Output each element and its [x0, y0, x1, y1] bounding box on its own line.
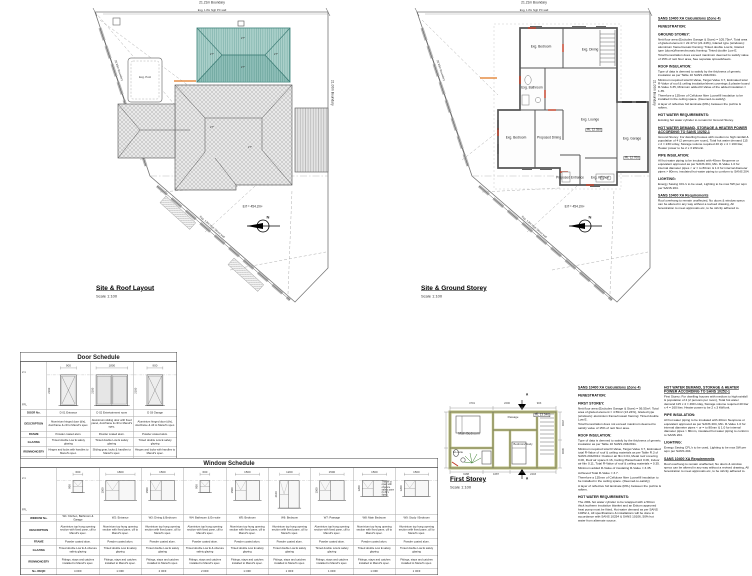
calc-paragraph: Energy Saving CFL's to be used, Lighting… — [658, 183, 750, 190]
window_schedule-iron-0: Fittings, stays and catches installed to… — [57, 555, 99, 568]
calc-heading: ROOF INSULATION: — [658, 65, 750, 69]
level-mark: 2.1 — [22, 477, 26, 480]
calc-paragraph: Total Fenestration does not exceed maxim… — [578, 423, 662, 430]
door_schedule-drawing-0: 9002100 — [47, 362, 90, 410]
calc-heading: HOT WATER REQUIREMENTS: — [578, 496, 662, 500]
window_schedule-req-5: 1 OFF — [268, 568, 310, 575]
door_schedule-glazing-2: Tinted double Low E safety glazing — [133, 438, 176, 447]
window_schedule-glazing-3: Tinted double Low E & obscure safety gla… — [183, 545, 225, 555]
calc-paragraph: All hot water piping to be insulated wit… — [658, 159, 750, 174]
calc-heading: PIPE INSULATION: — [664, 414, 750, 418]
window_schedule-desc-5: Aluminium top hung opening section with … — [268, 522, 310, 539]
calc-heading: SANS 10400 XA Requirements — [664, 457, 750, 461]
roof-pitch-label: 27° — [248, 146, 252, 149]
calc-paragraph: Roof overhang to remain unaffected, No d… — [664, 462, 750, 473]
window_schedule-glazing-6: Tinted double Low E safety glazing — [310, 545, 352, 555]
svg-text:2100: 2100 — [47, 387, 51, 394]
door_schedule-iron-2: Hinges and locks with handles to Manuf's… — [133, 447, 176, 457]
window_schedule-desc-6: Aluminium top hung opening section with … — [310, 522, 352, 539]
window_schedule-req-6: 1 OFF — [310, 568, 352, 575]
left-north-label: N — [267, 215, 270, 220]
svg-text:2100: 2100 — [134, 387, 138, 394]
window_schedule-drawing-4: 15001500 — [226, 468, 268, 515]
roof-pitch-label: 27° — [210, 126, 214, 129]
calc-heading: GROUND STOREY: — [658, 33, 750, 37]
window_schedule-req-8: 1 OFF — [395, 568, 437, 575]
room-label: Exg. Bedroom — [506, 136, 527, 140]
first-storey-title: First Storey — [450, 475, 486, 483]
level-mark: FFL — [22, 404, 27, 407]
room-label: Exg. Dining — [582, 48, 599, 52]
right-plan-scale: Scale 1:100 — [421, 294, 442, 299]
window_schedule-drawing-1: 18001500 — [99, 468, 141, 515]
svg-text:1500: 1500 — [329, 470, 336, 474]
calc-paragraph: Therefore a 135mm of Cellulose fibre Loo… — [658, 94, 750, 101]
window_schedule-desc-4: Aluminium top hung opening section with … — [226, 522, 268, 539]
section-marker-label: A — [526, 393, 528, 397]
room-label: Bedroom/Study — [514, 443, 533, 446]
right-plan-title: Site & Ground Storey — [421, 284, 487, 292]
calc-paragraph: All hot water piping to be insulated wit… — [664, 419, 750, 437]
window-note: This W to open with obscure safety pane … — [382, 481, 395, 497]
window_schedule-drawing-2: 15001500 — [141, 468, 183, 515]
window_schedule-glazing-7: Tinted double Low E safety glazing — [353, 545, 395, 555]
calc-heading: SANS 10400 XA Calculations (Zone 4) — [578, 386, 662, 390]
window_schedule-drawing-5: 12002100 — [268, 468, 310, 515]
left-street-wall-label: Exg. 1.8m High Street wall — [199, 215, 225, 239]
room-label: Exg. Bedroom — [531, 45, 552, 49]
door_schedule-iron-0: Hinges and locks with handles to Manuf's… — [47, 447, 90, 457]
section-marker-label: A — [526, 477, 528, 481]
calc-paragraph: Achieved Total R-Value = 3.7. — [578, 471, 662, 475]
rl-badge: RL 12.700 — [624, 156, 641, 160]
left-plan-scale: Scale 1:100 — [96, 294, 117, 299]
window_schedule-title: Window Schedule — [21, 459, 438, 468]
room-label: Exg. Bathroom — [521, 86, 543, 90]
window_schedule-desc-3: Aluminium top hung opening section with … — [183, 522, 225, 539]
door_schedule-drawing-2: 9002100 — [133, 362, 176, 410]
room-label: Proposed Entrance — [556, 176, 584, 180]
window_schedule-desc-0: Aluminium top hung opening section with … — [57, 522, 99, 539]
calc-paragraph: The 200L hot water cylinder to be wrappe… — [578, 501, 662, 523]
dim-label: 3600 — [561, 448, 564, 454]
window_schedule-no-4: W5: Bedroom — [226, 515, 268, 522]
room-label: Exg. Lounge — [581, 118, 599, 122]
calc-heading: HOT WATER REQUIREMENTS: — [658, 114, 750, 118]
svg-text:1500: 1500 — [145, 487, 149, 493]
svg-text:1500: 1500 — [371, 470, 378, 474]
door_schedule-row-label: IRONMONGERY — [21, 447, 47, 457]
svg-text:1200: 1200 — [399, 485, 403, 491]
calc-paragraph: Minimum added R-Value of insulating R-Va… — [578, 467, 662, 471]
svg-text:1500: 1500 — [244, 470, 251, 474]
window_schedule-row-label: DESCRIPTION — [21, 522, 57, 539]
room-label: Passage — [508, 416, 519, 419]
window_schedule-no-7: W8: Main Bedroom — [353, 515, 395, 522]
left-erf-label: Erf = 454.2m² — [243, 205, 263, 209]
calc-column-first-right: HOT WATER DEMAND, STORAGE & HEATER POWER… — [664, 386, 750, 474]
calc-paragraph: Minimum required total R-Value, Target V… — [658, 78, 750, 93]
window_schedule-glazing-8: Tinted double Low E safety glazing — [395, 545, 437, 555]
window_schedule-iron-2: Fittings, stays and catches installed to… — [141, 555, 183, 568]
window_schedule-iron-3: Fittings, stays and catches installed to… — [183, 555, 225, 568]
room-label: Proposed Dining — [537, 136, 561, 140]
door_schedule-desc-1: Aluminium sliding door with fixed panel,… — [90, 416, 133, 431]
svg-text:2100: 2100 — [274, 491, 278, 497]
left-boundary-left-label: 20.95m Boundary — [114, 60, 124, 82]
window_schedule-row-label: WINDOW No. — [21, 515, 57, 522]
svg-text:1500: 1500 — [230, 487, 234, 493]
svg-text:1500: 1500 — [159, 470, 166, 474]
door_schedule-row-label: GLAZING — [21, 438, 47, 447]
drawing-sheet: 21.21m Boundary Exg. 1.8m high PC wall 2… — [0, 0, 752, 576]
window_schedule-iron-6: Fittings, stays and catches installed to… — [310, 555, 352, 568]
window_schedule-no-6: W7: Passage — [310, 515, 352, 522]
first-storey-scale: Scale 1:100 — [450, 485, 471, 490]
calc-heading: SANS 10400 XA Requirements — [658, 194, 750, 198]
calc-heading: FENESTRATION: — [658, 25, 750, 29]
window_schedule-req-4: 1 OFF — [226, 568, 268, 575]
window_schedule-no-5: W6: Bedroom — [268, 515, 310, 522]
room-label: En-suite — [453, 451, 463, 454]
calc-paragraph: Nett floor area (Excludes Garage & Store… — [658, 38, 750, 53]
calc-heading: FENESTRATION: — [578, 394, 662, 398]
calc-heading: FIRST STOREY: — [578, 402, 662, 406]
right-pc-wall-label: Exg. 1.8m high PC wall — [520, 9, 548, 12]
window_schedule-no-1: W2: Entrance — [99, 515, 141, 522]
left-pc-wall-label: Exg. 1.8m high PC wall — [198, 9, 226, 12]
calc-paragraph: A layer of reflective foil laminate (RFL… — [658, 102, 750, 109]
micro-text-layer: 21.21m Boundary Exg. 1.8m high PC wall 2… — [0, 0, 752, 576]
roof-pitch-label: 27° — [274, 53, 278, 56]
window_schedule-iron-4: Fittings, stays and catches installed to… — [226, 555, 268, 568]
window_schedule-drawing-6: 15001500 — [310, 468, 352, 515]
calc-heading: SANS 10400 XA Calculations (Zone 4) — [658, 17, 750, 21]
calc-paragraph: Ground Storey: For dwelling houses with … — [658, 135, 750, 150]
calc-paragraph: First Storey: For dwelling houses with m… — [664, 395, 750, 410]
window_schedule-glazing-2: Tinted double Low E safety glazing — [141, 545, 183, 555]
right-boundary-top-label: 21.21m Boundary — [521, 1, 547, 5]
window_schedule-desc-8: Aluminium top hung opening section with … — [395, 522, 437, 539]
window_schedule-drawing-8: 15001200 — [395, 468, 437, 515]
window_schedule-no-8: W9: Study / Bedroom — [395, 515, 437, 522]
dim-label: 2200 — [561, 420, 564, 426]
svg-text:1500: 1500 — [314, 487, 318, 493]
svg-text:600: 600 — [202, 470, 207, 474]
door_schedule-iron-1: Sliding gear, locks & handles to Manuf's… — [90, 447, 133, 457]
door_schedule-levels: 2.1FFL — [21, 362, 47, 410]
calc-paragraph: Type of data is deemed to satisfy by the… — [658, 70, 750, 77]
svg-text:1500: 1500 — [100, 487, 104, 493]
window_schedule-glazing-1: Tinted double Low E safety glazing — [99, 545, 141, 555]
window_schedule-iron-5: Fittings, stays and catches installed to… — [268, 555, 310, 568]
svg-text:900: 900 — [195, 484, 199, 489]
room-label: Main Bedroom — [458, 432, 479, 436]
svg-text:600: 600 — [75, 470, 80, 474]
window_schedule-iron-1: Fittings, stays and catches installed to… — [99, 555, 141, 568]
calc-paragraph: A layer of reflective foil laminate (RFL… — [578, 484, 662, 491]
roof-pitch-label: 27° — [241, 66, 245, 69]
window_schedule-levels: 2.1FFL — [21, 468, 57, 515]
window_schedule-req-2: 2 OFF — [141, 568, 183, 575]
svg-text:1800: 1800 — [108, 363, 115, 367]
right-north-label: N — [589, 215, 592, 220]
svg-text:900: 900 — [153, 363, 158, 367]
right-boundary-right-label: 21.00m Boundary — [653, 80, 657, 106]
level-mark: 2.1 — [22, 371, 26, 374]
window_schedule-row-label: IRONMONGERY — [21, 555, 57, 568]
calc-paragraph: Therefore a 135mm of Cellulose fibre Loo… — [578, 476, 662, 483]
svg-text:1200: 1200 — [357, 485, 361, 491]
rl-badge: RL 13.346 — [534, 413, 551, 417]
calc-paragraph: Roof overhang to remain unaffected, No d… — [658, 199, 750, 210]
calc-column-ground: SANS 10400 XA Calculations (Zone 4)FENES… — [658, 17, 750, 211]
right-boundary-left-label: 20.95m Boundary — [436, 60, 446, 82]
calc-heading: LIGHTING: — [658, 178, 750, 182]
window_schedule-iron-8: Fittings, stays and catches installed to… — [395, 555, 437, 568]
svg-text:1200: 1200 — [286, 470, 293, 474]
calc-paragraph: Minimum required total R-Value, Target V… — [578, 447, 662, 465]
window_schedule-glazing-4: Tinted double Low E safety glazing — [226, 545, 268, 555]
window_schedule-desc-7: Aluminium top hung opening section with … — [353, 522, 395, 539]
window_schedule-desc-2: Aluminium top hung opening section with … — [141, 522, 183, 539]
right-erf-label: Erf = 454.2m² — [565, 205, 585, 209]
svg-text:900: 900 — [66, 363, 71, 367]
svg-text:2100: 2100 — [90, 387, 94, 394]
door_schedule-drawing-1: 18002100 — [90, 362, 133, 410]
pool-label: Exg. Pool — [139, 76, 151, 79]
roof-pitch-label: 27° — [241, 37, 245, 40]
door_schedule-desc-0: Aluminium hinged door (d/s), doorframe &… — [47, 416, 90, 431]
calc-heading: LIGHTING: — [664, 441, 750, 445]
window_schedule-drawing-7: 15001200This W to open with obscure safe… — [353, 468, 395, 515]
room-label: Exg. Garage — [623, 137, 641, 141]
level-mark: FFL — [22, 509, 27, 512]
window_schedule-row-label: GLAZING — [21, 545, 57, 555]
door-schedule: Door Schedule2.1FFL900210018002100900210… — [20, 352, 177, 463]
door_schedule-row-label: DESCRIPTION — [21, 416, 47, 431]
left-boundary-right-label: 21.00m Boundary — [331, 80, 335, 106]
dim-label: 2403 — [530, 473, 536, 476]
dim-label: 903 — [537, 402, 542, 405]
left-boundary-top-label: 21.21m Boundary — [199, 1, 225, 5]
door_schedule-glazing-0: Tinted double Low E safety glazing — [47, 438, 90, 447]
rl-badge: RL 12.350 — [586, 128, 603, 132]
door_schedule-glazing-1: Tinted double Low E safety glazing — [90, 438, 133, 447]
calc-paragraph: Energy Saving CFL's to be used, Lighting… — [664, 446, 750, 453]
window_schedule-glazing-5: Tinted double Low E safety glazing — [268, 545, 310, 555]
calc-heading: HOT WATER DEMAND, STORAGE & HEATER POWER… — [664, 386, 750, 394]
window_schedule-no-2: W3: Dining & Bedroom — [141, 515, 183, 522]
window-schedule: Window Schedule2.1FFL6009001800150015001… — [20, 458, 438, 575]
calc-heading: ROOF INSULATION: — [578, 434, 662, 438]
calc-column-first-left: SANS 10400 XA Calculations (Zone 4)FENES… — [578, 386, 662, 524]
calc-paragraph: Total Fenestration does exceed maximum d… — [658, 54, 750, 61]
svg-text:900: 900 — [68, 484, 72, 489]
window_schedule-req-0: 4 OFF — [57, 568, 99, 575]
svg-text:1500: 1500 — [413, 470, 420, 474]
svg-text:1800: 1800 — [117, 470, 124, 474]
calc-paragraph: Type of data is deemed to satisfy by the… — [578, 439, 662, 446]
window_schedule-no-0: W1: Kitchen, Bathroom & Garage — [57, 515, 99, 522]
calc-heading: PIPE INSULATION: — [658, 154, 750, 158]
dim-label: 2200 — [504, 402, 510, 405]
window_schedule-drawing-0: 600900 — [57, 468, 99, 515]
window_schedule-req-3: 2 OFF — [183, 568, 225, 575]
right-street-wall-label: Exg. 1.8m High Street wall — [521, 215, 547, 239]
roof-pitch-label: 27° — [210, 53, 214, 56]
window_schedule-req-1: 1 OFF — [99, 568, 141, 575]
window_schedule-desc-1: Aluminium top hung opening section with … — [99, 522, 141, 539]
dim-label: 1687 — [493, 473, 499, 476]
calc-heading: HOT WATER DEMAND, STORAGE & HEATER POWER… — [658, 126, 750, 134]
left-plan-title: Site & Roof Layout — [96, 284, 154, 292]
window_schedule-no-3: W4: Bathroom & En-suite — [183, 515, 225, 522]
window_schedule-iron-7: Fittings, stays and catches installed to… — [353, 555, 395, 568]
window_schedule-row-label: No. REQD — [21, 568, 57, 575]
room-label: Exg. Kitchen — [591, 176, 609, 180]
door_schedule-title: Door Schedule — [21, 353, 177, 362]
window_schedule-drawing-3: 600900 — [183, 468, 225, 515]
calc-paragraph: Nett floor area (Excludes Garage & Store… — [578, 407, 662, 422]
window_schedule-req-7: 1 OFF — [353, 568, 395, 575]
window_schedule-glazing-0: Tinted double Low E & obscure safety gla… — [57, 545, 99, 555]
door_schedule-desc-2: Aluminium hinged door (d/s), doorframe &… — [133, 416, 176, 431]
calc-paragraph: Existing hot water cylinder to remain fo… — [658, 119, 750, 123]
dim-label: 4701 — [469, 402, 475, 405]
